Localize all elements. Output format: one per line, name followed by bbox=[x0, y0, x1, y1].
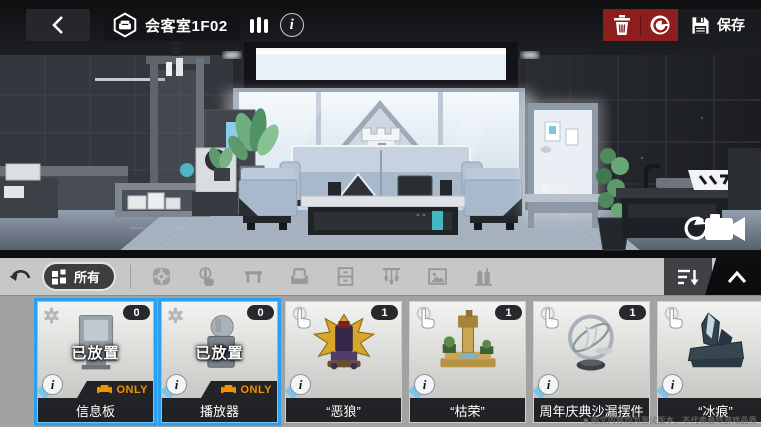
undo-button[interactable] bbox=[4, 258, 38, 295]
count-badge: 1 bbox=[495, 305, 522, 320]
item-name-bar: 播放器 bbox=[162, 398, 277, 422]
count-badge: 1 bbox=[371, 305, 398, 320]
save-floppy-icon bbox=[691, 16, 710, 35]
item-name: “恶狼” bbox=[326, 401, 361, 420]
theme-building-icon bbox=[473, 266, 494, 287]
back-button[interactable] bbox=[26, 9, 90, 41]
header-actions: 保存 bbox=[603, 9, 761, 41]
ceiling-light[interactable] bbox=[224, 42, 538, 88]
function-gear-icon bbox=[151, 266, 172, 287]
item-info-button[interactable]: i bbox=[662, 374, 683, 395]
ceiling-light-icon bbox=[381, 266, 402, 287]
item-name: 信息板 bbox=[76, 401, 115, 420]
reset-button[interactable] bbox=[641, 9, 678, 41]
item-info-icon: i bbox=[290, 374, 311, 395]
armchair-right[interactable] bbox=[464, 168, 522, 230]
furniture-card-1[interactable]: 0 已放置 i ONLY 信息板 bbox=[37, 301, 154, 423]
item-info-button[interactable]: i bbox=[166, 374, 187, 395]
room-title-group: 会客室1F02 bbox=[104, 9, 240, 41]
trash-icon bbox=[613, 15, 631, 35]
item-info-icon: i bbox=[42, 374, 63, 395]
item-info-icon: i bbox=[166, 374, 187, 395]
tab-interactive-furniture[interactable] bbox=[187, 258, 227, 295]
danger-actions bbox=[603, 9, 678, 41]
furniture-card-2[interactable]: 0 已放置 i ONLY 播放器 bbox=[161, 301, 278, 423]
info-button[interactable]: i bbox=[280, 13, 304, 37]
tap-interact-icon bbox=[197, 266, 218, 287]
item-list: 0 已放置 i ONLY 信息板 bbox=[0, 295, 761, 427]
comfort-bars-icon[interactable] bbox=[250, 17, 268, 33]
item-name-bar: 信息板 bbox=[38, 398, 153, 422]
seat-icon bbox=[289, 266, 310, 287]
item-name: “枯荣” bbox=[450, 401, 485, 420]
picture-icon bbox=[427, 266, 448, 287]
tab-table-furniture[interactable] bbox=[233, 258, 273, 295]
reset-icon bbox=[649, 14, 671, 36]
save-button[interactable]: 保存 bbox=[678, 9, 761, 41]
tab-cabinet-furniture[interactable] bbox=[325, 258, 365, 295]
item-info-icon: i bbox=[662, 374, 683, 395]
room-hexagon-sofa-icon bbox=[112, 12, 138, 38]
furniture-card-5[interactable]: 1 i 周年庆典沙漏摆件 bbox=[533, 301, 650, 423]
furniture-thumbnail bbox=[677, 310, 755, 376]
collapse-panel-button[interactable] bbox=[705, 258, 761, 295]
tab-all-furniture[interactable]: 所有 bbox=[42, 262, 116, 291]
furniture-thumbnail bbox=[305, 310, 383, 376]
count-badge: 0 bbox=[247, 305, 274, 320]
camera-reset-icon bbox=[683, 212, 747, 248]
tab-all-label: 所有 bbox=[74, 267, 100, 286]
table-icon bbox=[243, 266, 264, 287]
save-label: 保存 bbox=[717, 15, 745, 35]
furniture-card-6[interactable]: i “冰痕” bbox=[657, 301, 761, 423]
couch-only-icon bbox=[221, 384, 236, 395]
room-title: 会客室1F02 bbox=[145, 15, 228, 36]
count-badge: 0 bbox=[123, 305, 150, 320]
sort-button[interactable] bbox=[664, 258, 712, 295]
item-info-button[interactable]: i bbox=[538, 374, 559, 395]
grid-all-icon bbox=[51, 269, 67, 285]
tap-icon bbox=[413, 305, 440, 332]
sort-icon bbox=[676, 267, 700, 287]
back-chevron-icon bbox=[51, 15, 65, 35]
placed-status: 已放置 bbox=[162, 342, 277, 363]
cabinet-icon bbox=[335, 266, 356, 287]
item-name: 播放器 bbox=[200, 401, 239, 420]
undo-icon bbox=[9, 267, 33, 287]
gear-icon bbox=[42, 306, 61, 325]
toolbar-divider bbox=[130, 265, 131, 289]
item-info-button[interactable]: i bbox=[414, 374, 435, 395]
room-editor-screen: 会客室1F02 i bbox=[0, 0, 761, 427]
clear-all-button[interactable] bbox=[603, 9, 640, 41]
item-info-button[interactable]: i bbox=[42, 374, 63, 395]
tap-icon bbox=[289, 305, 316, 332]
tap-icon bbox=[537, 305, 564, 332]
camera-reset-button[interactable] bbox=[683, 212, 747, 248]
gear-icon bbox=[166, 306, 185, 325]
tab-decoration-furniture[interactable] bbox=[417, 258, 457, 295]
category-toolbar: 所有 bbox=[0, 258, 761, 295]
item-info-button[interactable]: i bbox=[290, 374, 311, 395]
tab-function-furniture[interactable] bbox=[141, 258, 181, 295]
furniture-card-3[interactable]: 1 i “恶狼” bbox=[285, 301, 402, 423]
build-watermark: ■ 图文内容均为测试版本，不代表最终游戏品质 bbox=[583, 415, 757, 426]
furniture-thumbnail bbox=[553, 310, 631, 376]
info-board[interactable] bbox=[522, 100, 604, 228]
furniture-panel: 所有 bbox=[0, 258, 761, 427]
tab-theme-furniture[interactable] bbox=[463, 258, 503, 295]
placed-status: 已放置 bbox=[38, 342, 153, 363]
tab-seat-furniture[interactable] bbox=[279, 258, 319, 295]
only-label: ONLY bbox=[116, 384, 148, 396]
furniture-thumbnail bbox=[429, 310, 507, 376]
only-badge: ONLY bbox=[201, 381, 277, 398]
item-info-icon: i bbox=[414, 374, 435, 395]
tab-ceiling-furniture[interactable] bbox=[371, 258, 411, 295]
only-badge: ONLY bbox=[77, 381, 153, 398]
only-label: ONLY bbox=[240, 384, 272, 396]
furniture-card-4[interactable]: 1 i “枯荣” bbox=[409, 301, 526, 423]
tap-icon bbox=[661, 305, 688, 332]
couch-only-icon bbox=[97, 384, 112, 395]
item-name-bar: “枯荣” bbox=[410, 398, 525, 422]
top-bar: 会客室1F02 i bbox=[0, 8, 761, 42]
collapse-up-icon bbox=[726, 269, 748, 285]
item-name-bar: “恶狼” bbox=[286, 398, 401, 422]
armchair-left[interactable] bbox=[239, 168, 297, 230]
item-info-icon: i bbox=[538, 374, 559, 395]
count-badge: 1 bbox=[619, 305, 646, 320]
